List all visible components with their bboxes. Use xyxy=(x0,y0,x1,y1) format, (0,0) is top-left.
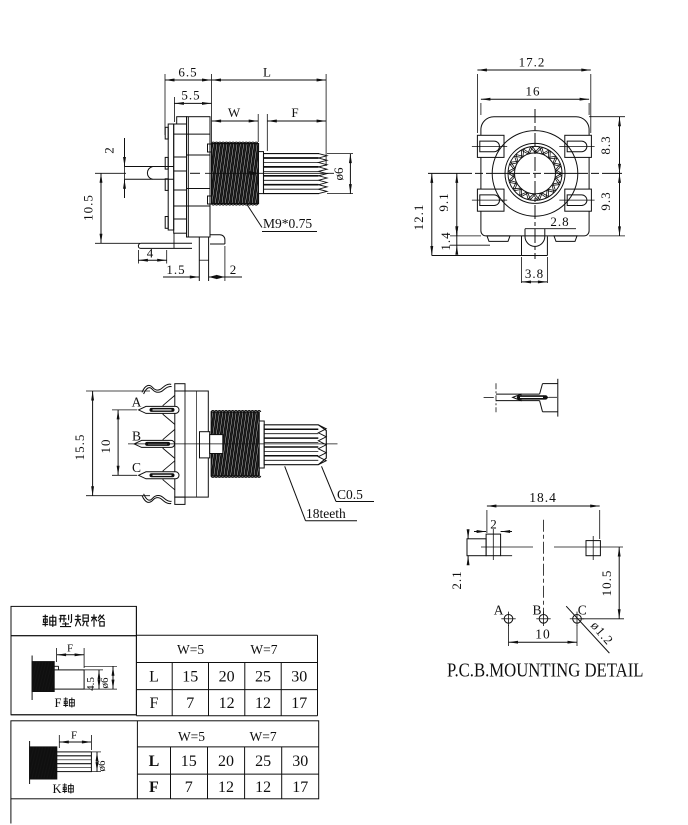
svg-text:C0.5: C0.5 xyxy=(337,487,363,502)
svg-text:M9*0.75: M9*0.75 xyxy=(263,216,312,231)
svg-text:18teeth: 18teeth xyxy=(306,506,346,521)
svg-text:10: 10 xyxy=(98,439,113,454)
svg-text:A: A xyxy=(494,603,504,618)
svg-text:L: L xyxy=(263,65,271,80)
svg-text:12: 12 xyxy=(219,695,235,712)
svg-text:15: 15 xyxy=(181,753,197,770)
svg-text:10.5: 10.5 xyxy=(599,570,614,597)
svg-text:15: 15 xyxy=(182,669,198,686)
svg-text:F: F xyxy=(150,695,159,712)
svg-text:7: 7 xyxy=(185,779,193,796)
svg-text:16: 16 xyxy=(526,84,541,99)
svg-text:10.5: 10.5 xyxy=(81,194,96,221)
svg-text:18.4: 18.4 xyxy=(529,490,557,505)
svg-text:ø6: ø6 xyxy=(99,677,111,689)
svg-text:K: K xyxy=(52,782,61,796)
svg-text:7: 7 xyxy=(186,695,194,712)
svg-text:1.5: 1.5 xyxy=(166,262,185,277)
svg-text:9.3: 9.3 xyxy=(598,191,613,210)
svg-text:ø6: ø6 xyxy=(96,760,108,772)
svg-text:B: B xyxy=(132,428,141,443)
svg-text:F: F xyxy=(55,696,62,710)
svg-text:W=5: W=5 xyxy=(178,729,205,744)
svg-text:2: 2 xyxy=(490,517,497,532)
svg-text:F: F xyxy=(149,779,159,796)
svg-text:L: L xyxy=(149,753,160,770)
svg-text:12: 12 xyxy=(255,695,271,712)
svg-text:17.2: 17.2 xyxy=(519,55,546,70)
svg-text:20: 20 xyxy=(219,669,235,686)
svg-text:F: F xyxy=(71,730,77,742)
svg-text:20: 20 xyxy=(218,753,234,770)
svg-text:F: F xyxy=(67,643,73,655)
svg-text:5.5: 5.5 xyxy=(181,88,200,103)
svg-text:2.1: 2.1 xyxy=(449,570,464,589)
svg-text:12: 12 xyxy=(218,779,234,796)
svg-text:W=5: W=5 xyxy=(177,642,204,657)
svg-text:ø1.2: ø1.2 xyxy=(588,618,617,648)
svg-text:3.8: 3.8 xyxy=(525,266,544,281)
svg-text:30: 30 xyxy=(291,669,307,686)
svg-text:A: A xyxy=(132,394,142,409)
svg-text:12.1: 12.1 xyxy=(411,204,426,231)
svg-text:F: F xyxy=(291,105,298,120)
svg-text:W=7: W=7 xyxy=(250,642,277,657)
svg-text:30: 30 xyxy=(292,753,308,770)
svg-text:W: W xyxy=(228,105,241,120)
svg-text:12: 12 xyxy=(255,779,271,796)
svg-text:B: B xyxy=(532,603,541,618)
svg-text:25: 25 xyxy=(255,669,271,686)
svg-text:17: 17 xyxy=(291,695,307,712)
svg-text:W=7: W=7 xyxy=(250,729,277,744)
svg-text:P.C.B.MOUNTING DETAIL: P.C.B.MOUNTING DETAIL xyxy=(447,661,644,682)
svg-text:2.8: 2.8 xyxy=(550,214,569,229)
svg-text:L: L xyxy=(149,669,159,686)
svg-text:25: 25 xyxy=(255,753,271,770)
svg-text:8.3: 8.3 xyxy=(598,135,613,154)
svg-text:9.1: 9.1 xyxy=(436,192,451,211)
svg-text:C: C xyxy=(578,603,587,618)
svg-text:2: 2 xyxy=(230,262,237,277)
svg-text:1.4: 1.4 xyxy=(438,231,453,250)
svg-text:ø6: ø6 xyxy=(331,167,346,181)
svg-text:17: 17 xyxy=(292,779,308,796)
svg-text:C: C xyxy=(132,460,141,475)
svg-text:15.5: 15.5 xyxy=(72,434,87,461)
svg-text:6.5: 6.5 xyxy=(178,65,197,80)
svg-text:4.5: 4.5 xyxy=(85,677,97,691)
svg-text:2: 2 xyxy=(102,147,117,154)
svg-text:4: 4 xyxy=(147,246,154,261)
svg-text:10: 10 xyxy=(535,627,551,642)
